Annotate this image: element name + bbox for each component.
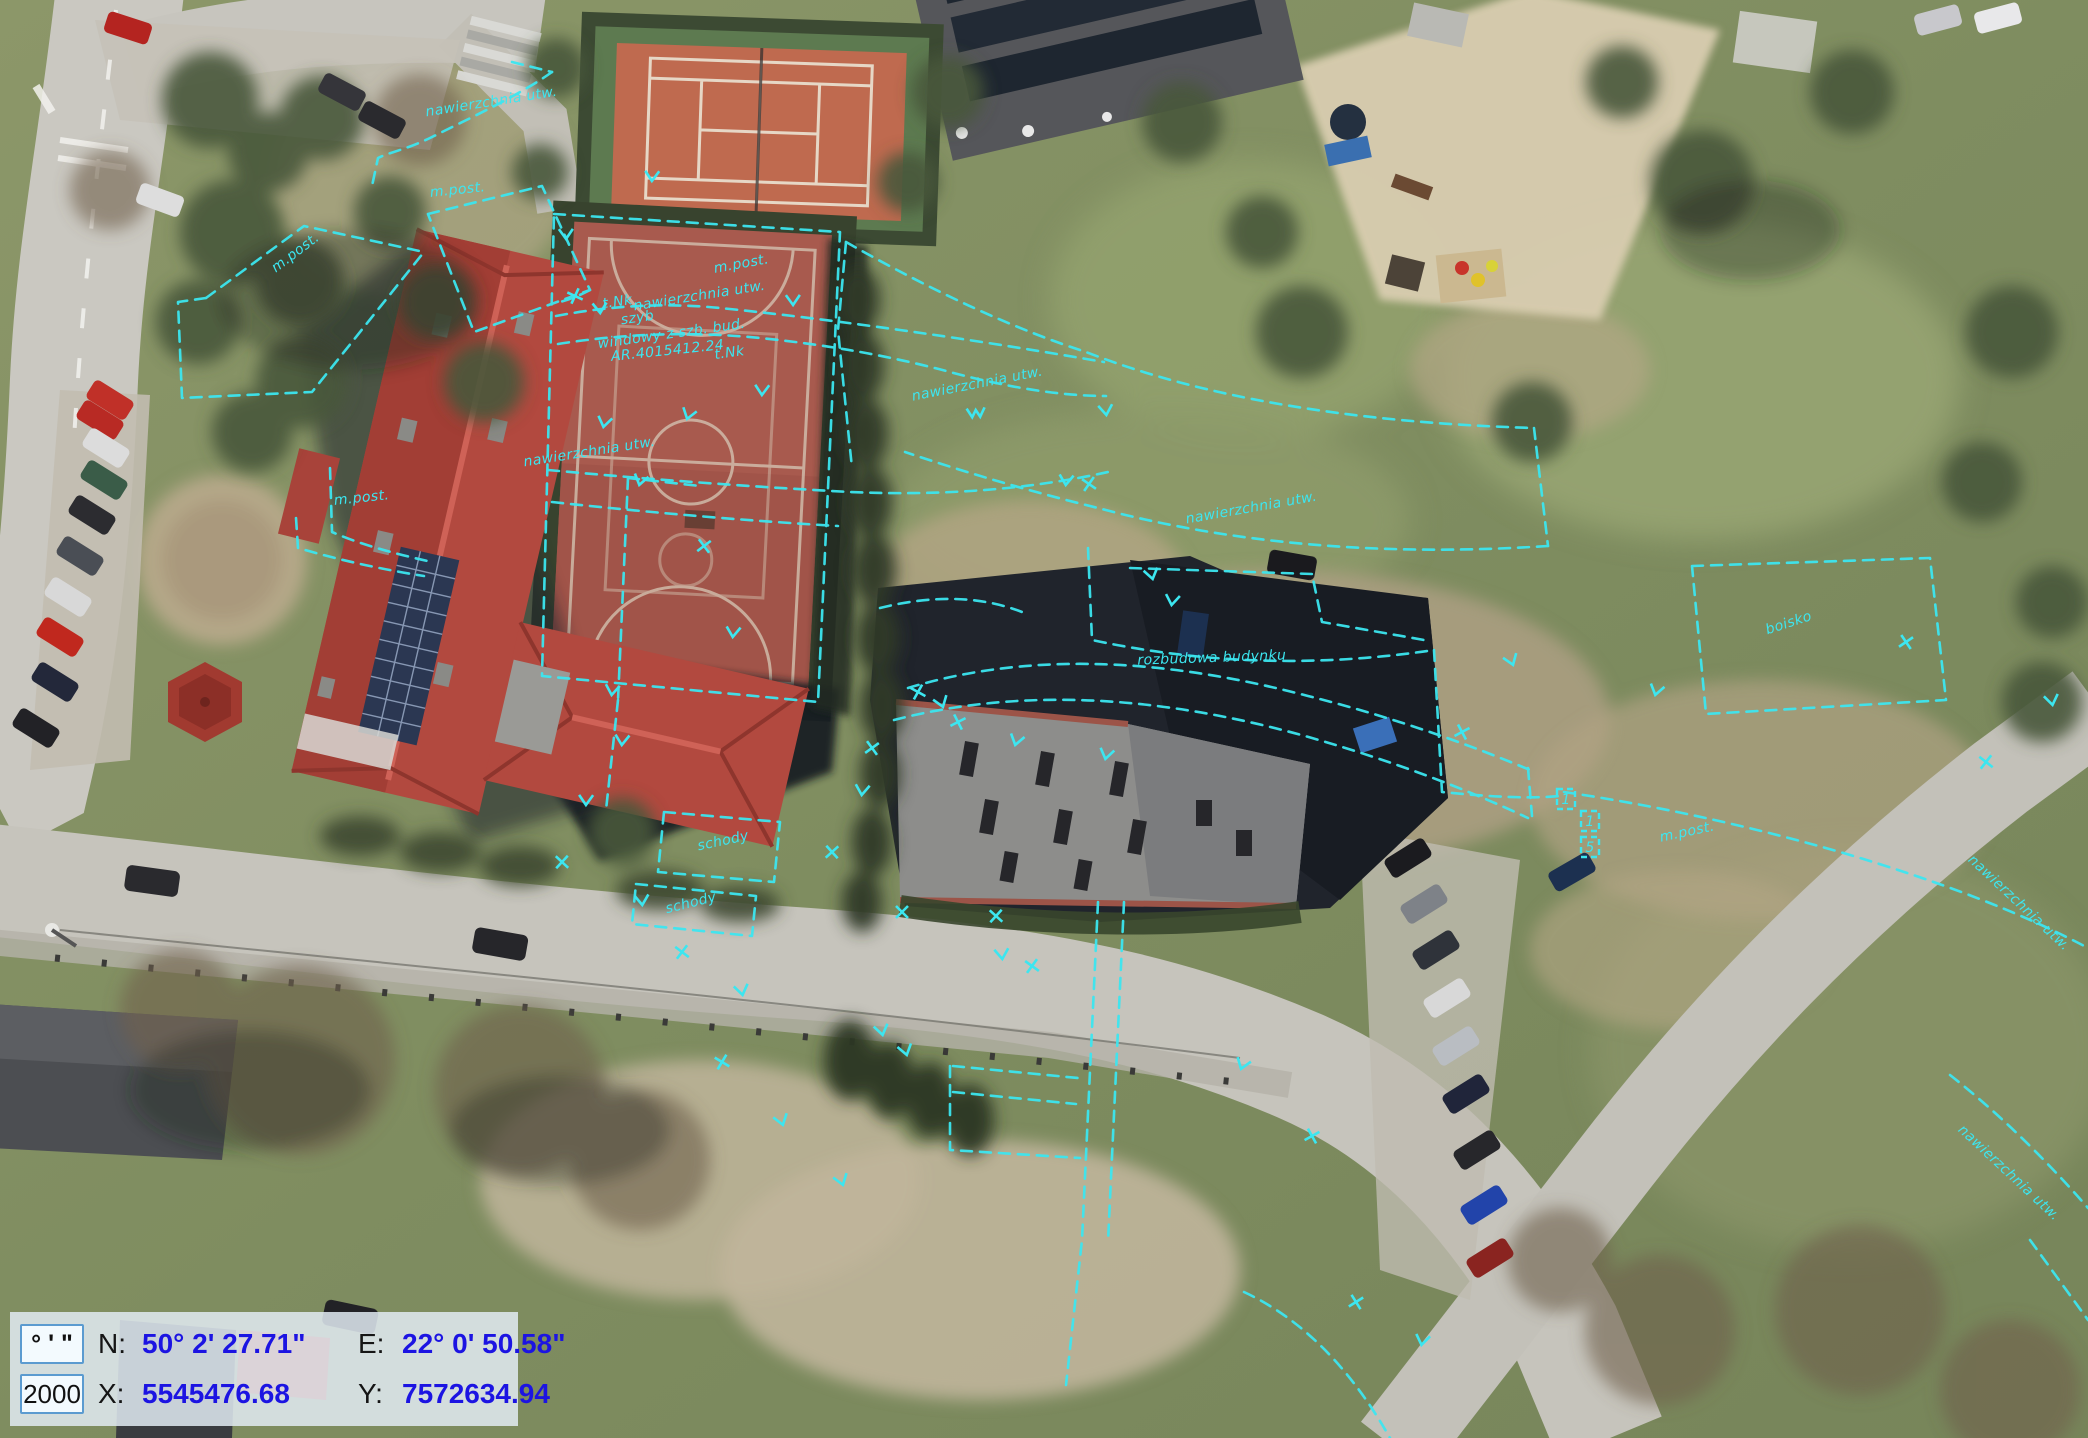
survey-annotation-label: nawierzchnia utw. (1184, 489, 1318, 528)
survey-annotation-label: m.post. (429, 179, 486, 201)
survey-annotation-label: rozbudowa budynku (1137, 647, 1286, 668)
survey-tick-mark (874, 1024, 890, 1037)
parcel-number: 1 (1561, 792, 1570, 808)
survey-number-boxes: 115 (1557, 789, 1599, 857)
survey-tick-mark (990, 910, 1003, 923)
survey-annotation-label: m.post. (1658, 818, 1716, 845)
survey-tick-mark (826, 846, 839, 859)
survey-tick-mark (579, 795, 593, 805)
survey-tick-mark (896, 906, 908, 918)
survey-tick-mark (1349, 1295, 1363, 1309)
projected-coords-row: 2000 X: 5545476.68 Y: 7572634.94 (20, 1372, 565, 1416)
survey-tick-mark (833, 1173, 849, 1187)
latitude-value: 50° 2' 27.71" (142, 1328, 358, 1360)
geographic-coords-row: ° ' " N: 50° 2' 27.71" E: 22° 0' 50.58" (20, 1322, 565, 1366)
survey-tick-mark (950, 714, 965, 729)
map-viewport[interactable]: 115 nawierzchnia utw.m.post.m.post.t.Nks… (0, 0, 2088, 1438)
survey-tick-mark (1415, 1334, 1431, 1346)
survey-tick-mark (715, 1055, 730, 1070)
survey-tick-mark (1648, 684, 1664, 697)
survey-tick-mark (675, 945, 689, 959)
survey-tick-mark (1008, 733, 1024, 746)
survey-tick-mark (556, 856, 568, 868)
survey-ticks (556, 171, 2060, 1346)
survey-annotation-label: schody (696, 828, 750, 855)
survey-tick-mark (680, 407, 696, 421)
survey-tick-mark (1099, 748, 1115, 761)
survey-annotation-label: boisko (1764, 608, 1814, 638)
survey-annotation-label: m.post. (269, 230, 323, 276)
survey-tick-mark (1305, 1129, 1320, 1144)
survey-tick-mark (1234, 1057, 1250, 1071)
survey-tick-mark (1165, 594, 1180, 606)
survey-tick-mark (734, 984, 750, 996)
survey-tick-mark (1455, 725, 1470, 740)
survey-overlay: 115 nawierzchnia utw.m.post.m.post.t.Nks… (0, 0, 2088, 1438)
survey-tick-mark (786, 295, 800, 305)
longitude-label: E: (358, 1328, 402, 1360)
survey-tick-mark (726, 626, 741, 637)
latitude-label: N: (98, 1328, 142, 1360)
survey-annotation-label: nawierzchnia utw. (1965, 852, 2073, 954)
survey-annotation-label: nawierzchnia utw. (910, 364, 1044, 405)
y-label: Y: (358, 1378, 402, 1410)
survey-annotation-label: m.post. (713, 251, 771, 276)
survey-tick-mark (773, 1113, 789, 1127)
survey-tick-mark (559, 229, 573, 239)
survey-tick-mark (1098, 404, 1113, 416)
survey-tick-mark (1025, 959, 1039, 973)
survey-tick-mark (2044, 694, 2060, 706)
survey-tick-mark (697, 539, 711, 553)
parcel-number: 1 (1585, 814, 1594, 830)
survey-tick-mark (1082, 477, 1096, 491)
survey-annotation-label: nawierzchnia utw. (632, 278, 766, 315)
survey-tick-mark (897, 1043, 913, 1056)
survey-tick-mark (994, 948, 1009, 959)
survey-annotation-label: nawierzchnia utw. (1955, 1122, 2063, 1224)
survey-annotation-label: nawierzchnia utw. (424, 84, 558, 121)
survey-tick-mark (967, 407, 986, 417)
survey-tick-mark (855, 784, 870, 795)
survey-annotation-label: m.post. (333, 487, 390, 509)
y-value: 7572634.94 (402, 1378, 565, 1410)
survey-annotation-label: t.Nk (713, 343, 746, 363)
survey-tick-mark (1899, 635, 1913, 649)
survey-tick-mark (865, 741, 879, 755)
coordinate-panel: ° ' " N: 50° 2' 27.71" E: 22° 0' 50.58" … (10, 1312, 518, 1426)
survey-annotation-label: schody (664, 889, 719, 917)
survey-tick-mark (1979, 755, 1992, 768)
survey-tick-mark (597, 416, 613, 428)
survey-tick-mark (645, 171, 659, 181)
angle-format-button[interactable]: ° ' " (20, 1324, 84, 1364)
survey-tick-mark (933, 695, 949, 709)
parcel-number: 5 (1585, 840, 1594, 856)
survey-lines (178, 62, 2088, 1438)
survey-labels: nawierzchnia utw.m.post.m.post.t.Nkszybw… (269, 84, 2073, 1225)
survey-tick-mark (615, 735, 630, 746)
crs-2000-button[interactable]: 2000 (20, 1374, 84, 1414)
survey-tick-mark (634, 894, 649, 905)
survey-tick-mark (1503, 653, 1520, 667)
survey-annotation-label: nawierzchnia utw. (522, 434, 656, 471)
x-label: X: (98, 1378, 142, 1410)
survey-tick-mark (755, 385, 769, 395)
x-value: 5545476.68 (142, 1378, 358, 1410)
longitude-value: 22° 0' 50.58" (402, 1328, 565, 1360)
survey-annotation-label: t.Nk (601, 292, 634, 312)
